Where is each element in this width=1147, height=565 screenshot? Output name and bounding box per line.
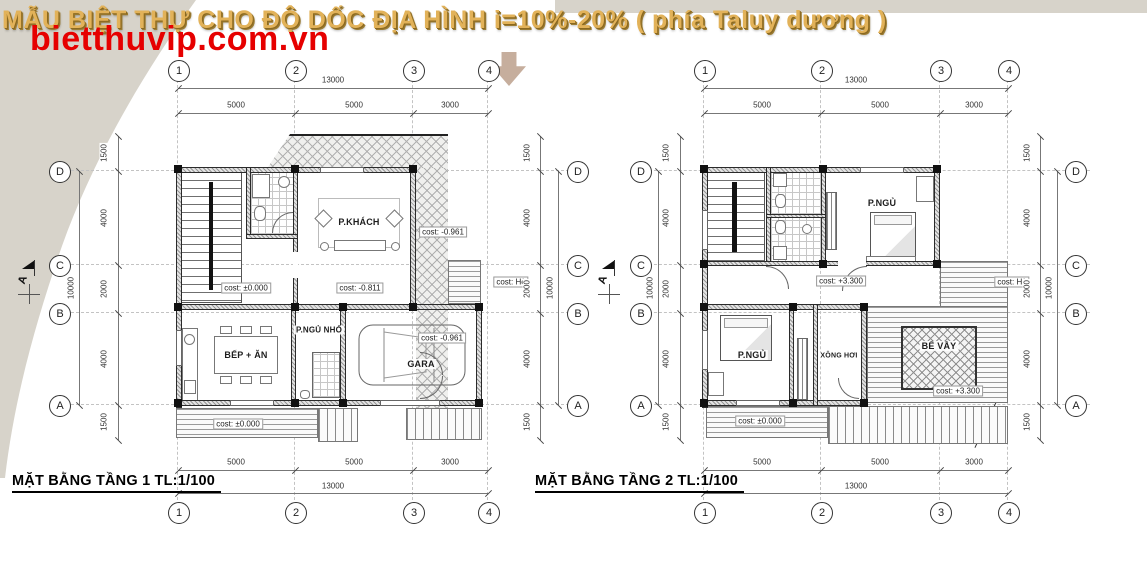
window xyxy=(702,330,708,370)
dim-line xyxy=(178,493,488,494)
wall xyxy=(789,304,794,406)
chair-icon xyxy=(220,326,232,334)
side-table-icon xyxy=(320,242,329,251)
chair-icon xyxy=(260,376,272,384)
column xyxy=(409,303,417,311)
dim-line xyxy=(118,136,119,440)
dim-line xyxy=(704,88,1008,89)
bathtub-icon xyxy=(252,174,270,198)
dim-value: 13000 xyxy=(321,482,345,491)
level-label: cost: +3.300 xyxy=(816,276,866,287)
dim-value: 2000 xyxy=(523,279,532,299)
dim-value: 2000 xyxy=(1023,279,1032,299)
column xyxy=(339,303,347,311)
room-label-living: P.KHÁCH xyxy=(336,217,381,227)
dim-value: 1500 xyxy=(1023,143,1032,163)
level-label: cost: ±0.000 xyxy=(735,416,785,427)
wall xyxy=(813,304,818,406)
dim-value: 4000 xyxy=(100,349,109,369)
window xyxy=(176,330,182,366)
wall xyxy=(291,310,296,406)
dim-value: 5000 xyxy=(344,458,364,467)
dim-value: 1500 xyxy=(662,412,671,432)
dim-value: 1500 xyxy=(100,412,109,432)
grid-bubble-row: A xyxy=(49,395,71,417)
section-label: A xyxy=(16,274,30,286)
dim-value: 1500 xyxy=(523,143,532,163)
dim-value: 4000 xyxy=(523,208,532,228)
dim-line xyxy=(704,493,1008,494)
grid-bubble-row: A xyxy=(567,395,589,417)
grid-bubble-row: D xyxy=(49,161,71,183)
door-opening xyxy=(293,252,298,278)
window xyxy=(702,210,708,250)
window xyxy=(230,400,274,406)
dim-value: 10000 xyxy=(1045,276,1054,300)
dim-value: 3000 xyxy=(440,458,460,467)
dim-tick xyxy=(677,437,684,444)
dim-value: 4000 xyxy=(662,349,671,369)
room-label-kitchen: BẾP + ĂN xyxy=(222,350,269,360)
dim-line xyxy=(680,136,681,440)
wall xyxy=(246,234,298,239)
grid-bubble-col: 2 xyxy=(811,60,833,82)
dim-tick xyxy=(1037,133,1044,140)
shower-icon xyxy=(773,246,787,260)
section-cross xyxy=(609,284,610,304)
dim-line xyxy=(704,113,1008,114)
dim-value: 3000 xyxy=(964,458,984,467)
dim-value: 1500 xyxy=(523,412,532,432)
grid-bubble-col: 1 xyxy=(168,502,190,524)
column xyxy=(174,303,182,311)
dim-value: 2000 xyxy=(100,279,109,299)
level-label: cost: +3.300 xyxy=(933,386,983,397)
dim-value: 1500 xyxy=(1023,412,1032,432)
dim-tick xyxy=(537,437,544,444)
section-label: A xyxy=(596,274,610,286)
room-label-sauna: XÔNG HƠI xyxy=(818,353,859,360)
grid-bubble-row: B xyxy=(567,303,589,325)
wall xyxy=(176,304,482,310)
grid-bubble-row: C xyxy=(1065,255,1087,277)
column xyxy=(789,303,797,311)
column xyxy=(409,165,417,173)
wide-steps xyxy=(828,406,1008,444)
section-cross xyxy=(29,284,30,304)
column xyxy=(700,303,708,311)
door-swing xyxy=(766,266,789,289)
dim-value: 10000 xyxy=(646,276,655,300)
garage-apron-steps xyxy=(406,408,482,440)
grid-bubble-col: 2 xyxy=(285,60,307,82)
sink-icon xyxy=(802,224,812,234)
dresser-icon xyxy=(916,176,934,202)
wall xyxy=(176,167,182,408)
column xyxy=(174,399,182,407)
column xyxy=(291,165,299,173)
column xyxy=(291,399,299,407)
dim-value: 3000 xyxy=(964,101,984,110)
dim-value: 4000 xyxy=(1023,208,1032,228)
dim-value: 5000 xyxy=(344,101,364,110)
dim-value: 10000 xyxy=(67,276,76,300)
dim-value: 5000 xyxy=(226,458,246,467)
column xyxy=(819,260,827,268)
dim-line xyxy=(1057,171,1058,405)
room-label-garage: GARA xyxy=(405,359,436,369)
grid-bubble-row: B xyxy=(49,303,71,325)
section-pole xyxy=(34,260,35,276)
grid-bubble-col: 4 xyxy=(998,60,1020,82)
dim-value: 4000 xyxy=(523,349,532,369)
stair-rail xyxy=(209,182,213,290)
door-opening xyxy=(838,261,866,266)
dim-value: 4000 xyxy=(100,208,109,228)
sofa-icon xyxy=(334,240,386,251)
dim-value: 1500 xyxy=(662,143,671,163)
toilet-icon xyxy=(300,390,310,399)
level-label: cost: -0.961 xyxy=(419,227,467,238)
grid-bubble-col: 3 xyxy=(930,60,952,82)
wall xyxy=(934,167,940,266)
dim-value: 10000 xyxy=(546,276,555,300)
dim-value: 5000 xyxy=(870,101,890,110)
gridline-row xyxy=(66,264,584,265)
wardrobe-icon xyxy=(826,192,837,250)
level-label: cost: ±0.000 xyxy=(213,419,263,430)
dim-line xyxy=(540,136,541,440)
column xyxy=(789,399,797,407)
grid-bubble-col: 2 xyxy=(811,502,833,524)
dim-value: 4000 xyxy=(662,208,671,228)
section-marker: A xyxy=(598,260,624,304)
grid-bubble-row: B xyxy=(630,303,652,325)
grid-bubble-row: C xyxy=(49,255,71,277)
grid-bubble-col: 4 xyxy=(998,502,1020,524)
room-label-small-bedroom: P.NGỦ NHỎ xyxy=(294,326,344,335)
column xyxy=(819,165,827,173)
column xyxy=(291,303,299,311)
plan1-title: MẶT BẰNG TẦNG 1 TL:1/100 xyxy=(12,473,221,493)
dim-line xyxy=(178,113,488,114)
room-label-pool: BỂ VẦY xyxy=(920,341,959,351)
column xyxy=(700,399,708,407)
column xyxy=(860,303,868,311)
grid-bubble-row: A xyxy=(1065,395,1087,417)
plan2-title: MẶT BẰNG TẦNG 2 TL:1/100 xyxy=(535,473,744,493)
desk-icon xyxy=(708,372,724,396)
toilet-icon xyxy=(254,206,266,221)
grid-bubble-col: 1 xyxy=(694,60,716,82)
sink-icon xyxy=(278,176,290,188)
dim-value: 5000 xyxy=(870,458,890,467)
dim-line xyxy=(1040,136,1041,440)
dim-line xyxy=(704,470,1008,471)
closet-icon xyxy=(797,338,808,400)
grid-bubble-row: D xyxy=(567,161,589,183)
column xyxy=(475,303,483,311)
dim-line xyxy=(558,171,559,405)
grid-bubble-col: 4 xyxy=(478,60,500,82)
wall xyxy=(861,304,867,406)
column xyxy=(700,165,708,173)
garage-door xyxy=(380,400,440,406)
chair-icon xyxy=(220,376,232,384)
window xyxy=(860,167,904,173)
wall xyxy=(246,167,251,239)
dim-value: 3000 xyxy=(440,101,460,110)
column xyxy=(933,165,941,173)
toilet-icon xyxy=(775,220,786,234)
wall xyxy=(702,304,867,310)
grid-bubble-row: B xyxy=(1065,303,1087,325)
chair-icon xyxy=(240,326,252,334)
toilet-icon xyxy=(775,194,786,208)
column xyxy=(860,399,868,407)
gridline-row xyxy=(66,312,584,313)
lower-stair-hatch xyxy=(312,352,340,398)
dim-tick xyxy=(677,133,684,140)
grid-bubble-row: D xyxy=(630,161,652,183)
dim-value: 13000 xyxy=(321,76,345,85)
grid-bubble-col: 1 xyxy=(168,60,190,82)
grid-bubble-row: C xyxy=(630,255,652,277)
side-steps xyxy=(448,260,481,304)
grid-bubble-col: 2 xyxy=(285,502,307,524)
room-label-bedroom2: P.NGỦ xyxy=(736,350,768,360)
dim-line xyxy=(79,171,80,405)
stove-icon xyxy=(184,380,196,394)
grid-bubble-col: 3 xyxy=(930,502,952,524)
door-swing xyxy=(838,378,859,399)
dim-value: 2000 xyxy=(662,279,671,299)
dim-value: 5000 xyxy=(752,101,772,110)
chair-icon xyxy=(240,376,252,384)
dim-line xyxy=(658,171,659,405)
wall xyxy=(702,167,708,408)
column xyxy=(700,260,708,268)
gridline-col xyxy=(487,80,488,500)
column xyxy=(475,399,483,407)
stair-rail xyxy=(732,182,737,252)
wall xyxy=(476,304,482,406)
level-label: cost: -0.811 xyxy=(336,283,383,294)
grid-bubble-row: C xyxy=(567,255,589,277)
dim-tick xyxy=(1037,437,1044,444)
grid-bubble-col: 3 xyxy=(403,502,425,524)
dim-value: 5000 xyxy=(752,458,772,467)
level-label: cost: ±0.000 xyxy=(221,283,271,294)
watermark-text: bietthuvip.com.vn xyxy=(30,20,329,59)
dim-value: 13000 xyxy=(844,76,868,85)
window xyxy=(320,167,364,173)
dim-line xyxy=(178,470,488,471)
column xyxy=(339,399,347,407)
room-label-bedroom1: P.NGỦ xyxy=(866,198,898,208)
section-pole xyxy=(614,260,615,276)
wall xyxy=(766,214,826,218)
window xyxy=(736,400,780,406)
dim-value: 1500 xyxy=(100,143,109,163)
chair-icon xyxy=(260,326,272,334)
grid-bubble-col: 3 xyxy=(403,60,425,82)
bed-icon xyxy=(870,212,916,262)
dim-tick xyxy=(537,133,544,140)
wall xyxy=(410,167,416,310)
column xyxy=(174,165,182,173)
dim-value: 4000 xyxy=(1023,349,1032,369)
column xyxy=(933,260,941,268)
grid-bubble-row: A xyxy=(630,395,652,417)
grid-bubble-row: D xyxy=(1065,161,1087,183)
drawing-canvas: MẪU BIỆT THỰ CHO ĐỘ DỐC ĐỊA HÌNH i=10%-2… xyxy=(0,0,1147,565)
plunge-pool xyxy=(901,326,977,390)
wall xyxy=(702,400,867,406)
wall xyxy=(340,304,346,406)
grid-bubble-col: 1 xyxy=(694,502,716,524)
dim-value: 13000 xyxy=(844,482,868,491)
side-table-icon xyxy=(391,242,400,251)
level-label: cost: -0.961 xyxy=(418,333,466,344)
section-marker: A xyxy=(18,260,44,304)
dim-value: 5000 xyxy=(226,101,246,110)
dim-line xyxy=(178,88,488,89)
grid-bubble-col: 4 xyxy=(478,502,500,524)
terrace-steps xyxy=(318,408,358,442)
kitchen-sink-icon xyxy=(184,334,195,345)
shower-icon xyxy=(773,173,787,187)
